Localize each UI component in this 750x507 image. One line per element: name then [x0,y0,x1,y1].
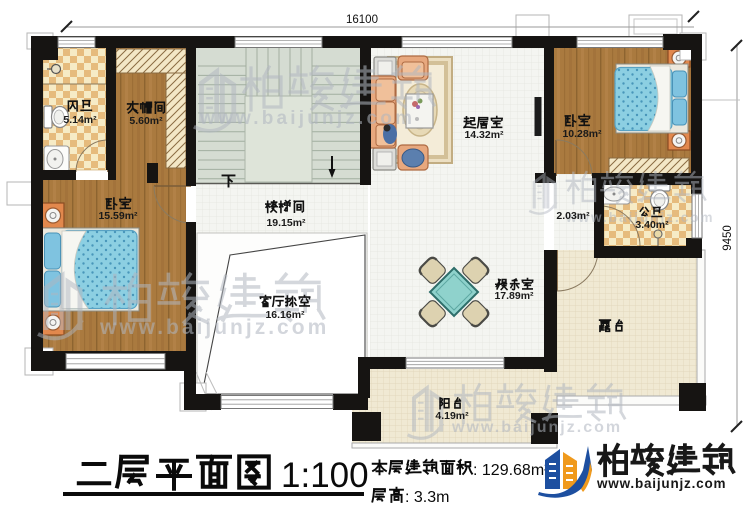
svg-text:14.32m²: 14.32m² [464,129,504,141]
svg-text:1:100: 1:100 [281,456,369,495]
svg-text:17.89m²: 17.89m² [494,290,534,302]
svg-text:9450: 9450 [722,225,734,251]
svg-text:2.03m²: 2.03m² [556,210,590,222]
svg-text:16100: 16100 [346,14,378,26]
svg-text:: 3.3m: : 3.3m [405,489,449,506]
svg-text:3.40m²: 3.40m² [635,219,669,231]
svg-text:www.baijunjz.com: www.baijunjz.com [451,419,622,436]
svg-text:4.19m²: 4.19m² [435,410,469,422]
svg-text:www.baijunjz.com: www.baijunjz.com [199,108,415,129]
svg-text:5.14m²: 5.14m² [63,114,97,126]
svg-text:www.baijunjz.com: www.baijunjz.com [596,476,726,491]
svg-text:5.60m²: 5.60m² [129,115,163,127]
svg-text:16.16m²: 16.16m² [265,309,305,321]
svg-text:19.15m²: 19.15m² [266,217,306,229]
svg-text:15.59m²: 15.59m² [98,210,138,222]
svg-text:: 129.68m²: : 129.68m² [473,462,550,479]
svg-text:10.28m²: 10.28m² [562,128,602,140]
